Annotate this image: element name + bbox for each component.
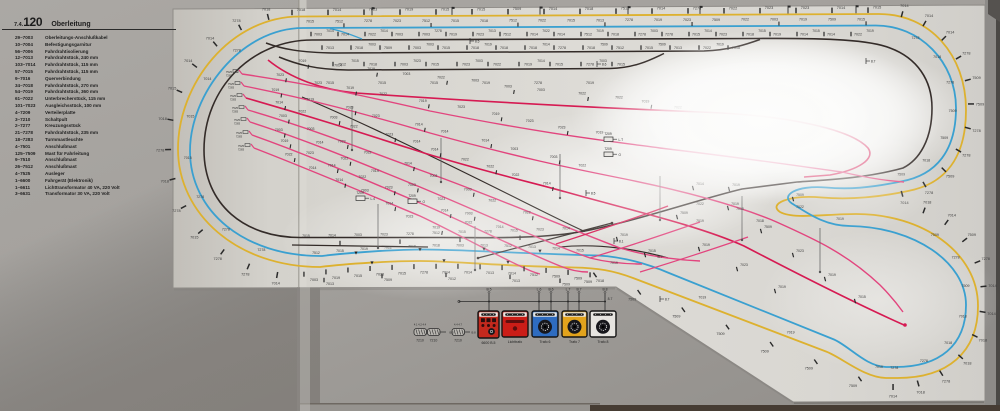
svg-text:L.7: L.7 (566, 288, 571, 292)
svg-text:7509: 7509 (849, 384, 857, 388)
svg-text:7014: 7014 (827, 33, 835, 37)
svg-text:7018: 7018 (963, 361, 971, 365)
svg-text:7022: 7022 (542, 29, 550, 33)
svg-text:7014: 7014 (900, 4, 908, 8)
svg-text:7003: 7003 (510, 147, 518, 151)
svg-text:7015: 7015 (351, 59, 359, 63)
svg-text:7003: 7003 (475, 59, 483, 63)
svg-text:7210: 7210 (454, 339, 462, 343)
svg-text:7022: 7022 (350, 125, 358, 129)
svg-text:7018: 7018 (944, 341, 952, 345)
svg-text:7278: 7278 (172, 209, 180, 213)
svg-text:7023: 7023 (740, 263, 748, 267)
svg-text:7509: 7509 (968, 233, 976, 237)
svg-text:7018: 7018 (933, 55, 941, 59)
svg-text:7022: 7022 (437, 75, 445, 79)
svg-text:7022: 7022 (368, 33, 376, 37)
svg-text:7278: 7278 (364, 19, 372, 23)
svg-text:7003: 7003 (403, 72, 411, 76)
svg-text:7015: 7015 (567, 18, 575, 22)
svg-text:7019: 7019 (299, 59, 307, 63)
svg-text:7014: 7014 (800, 33, 808, 37)
svg-text:7014: 7014 (413, 140, 421, 144)
svg-text:8.5: 8.5 (591, 192, 596, 196)
svg-text:7003: 7003 (307, 127, 315, 131)
svg-text:7209: 7209 (356, 191, 364, 195)
svg-text:7278: 7278 (233, 48, 241, 52)
svg-text:7509: 7509 (949, 109, 957, 113)
svg-text:7509: 7509 (584, 280, 592, 284)
svg-text:7019: 7019 (787, 330, 795, 334)
svg-text:7003: 7003 (770, 18, 778, 22)
svg-text:Lichttrafo: Lichttrafo (508, 340, 522, 344)
svg-text:7509: 7509 (384, 46, 392, 50)
svg-text:7015: 7015 (430, 81, 438, 85)
svg-text:7278: 7278 (890, 366, 898, 370)
svg-text:7018: 7018 (262, 8, 270, 12)
svg-text:7014: 7014 (333, 8, 341, 12)
svg-text:7018: 7018 (480, 19, 488, 23)
svg-text:7003: 7003 (504, 85, 512, 89)
svg-text:7023: 7023 (476, 33, 484, 37)
svg-text:7013: 7013 (326, 282, 334, 286)
svg-text:7512: 7512 (312, 251, 320, 255)
svg-text:7014: 7014 (948, 214, 956, 218)
svg-text:7283: 7283 (232, 110, 239, 114)
svg-text:7283: 7283 (230, 98, 237, 102)
svg-text:7019: 7019 (367, 67, 375, 71)
svg-text:7278: 7278 (638, 33, 646, 37)
svg-text:7003: 7003 (430, 174, 438, 178)
svg-text:7512: 7512 (584, 33, 592, 37)
svg-text:7278: 7278 (534, 81, 542, 85)
svg-text:7014: 7014 (530, 33, 538, 37)
svg-text:7014: 7014 (371, 169, 379, 173)
svg-text:7023: 7023 (346, 106, 354, 110)
svg-text:7019: 7019 (492, 112, 500, 116)
svg-text:7015: 7015 (306, 20, 314, 24)
svg-text:7015: 7015 (477, 7, 485, 11)
svg-text:7278: 7278 (962, 52, 970, 56)
svg-text:7018: 7018 (297, 8, 305, 12)
svg-text:7022: 7022 (379, 92, 387, 96)
svg-text:7015: 7015 (645, 46, 653, 50)
svg-text:8.7: 8.7 (665, 298, 670, 302)
svg-text:7278: 7278 (665, 33, 673, 37)
svg-text:4.4 4.7: 4.4 4.7 (454, 323, 462, 327)
svg-text:7278: 7278 (257, 248, 265, 252)
svg-text:7014: 7014 (275, 101, 283, 105)
svg-text:7014: 7014 (557, 33, 565, 37)
svg-text:7003: 7003 (413, 46, 421, 50)
svg-text:7512: 7512 (335, 19, 343, 23)
svg-text:7023: 7023 (306, 151, 314, 155)
svg-text:7015: 7015 (184, 156, 192, 160)
svg-text:7003: 7003 (422, 33, 430, 37)
svg-text:8.7: 8.7 (871, 60, 876, 64)
svg-text:7283: 7283 (236, 135, 243, 139)
svg-text:7209: 7209 (604, 132, 612, 136)
svg-text:7003: 7003 (650, 29, 658, 33)
svg-text:Trafo 7: Trafo 7 (569, 340, 580, 344)
svg-text:7022: 7022 (854, 33, 862, 37)
svg-text:L.4: L.4 (371, 197, 376, 201)
svg-text:7023: 7023 (462, 63, 470, 67)
svg-text:7278: 7278 (942, 379, 950, 383)
svg-text:7014: 7014 (380, 29, 388, 33)
svg-text:7014: 7014 (335, 178, 343, 182)
svg-text:7003: 7003 (395, 33, 403, 37)
svg-text:8.5: 8.5 (475, 40, 480, 44)
svg-text:7022: 7022 (512, 173, 520, 177)
svg-text:7509: 7509 (712, 18, 720, 22)
svg-text:7512: 7512 (503, 33, 511, 37)
svg-text:7509: 7509 (672, 315, 680, 319)
svg-text:7019: 7019 (484, 43, 492, 47)
svg-text:7022: 7022 (341, 156, 349, 160)
svg-text:7509: 7509 (828, 17, 836, 21)
svg-text:7022: 7022 (729, 6, 737, 10)
svg-text:7509: 7509 (976, 103, 984, 107)
svg-text:7019: 7019 (271, 88, 279, 92)
svg-text:7018: 7018 (585, 7, 593, 11)
svg-text:7018: 7018 (979, 338, 987, 342)
svg-text:7019: 7019 (332, 276, 340, 280)
svg-text:7018: 7018 (500, 46, 508, 50)
svg-text:7023: 7023 (276, 73, 284, 77)
svg-text:7509: 7509 (940, 136, 948, 140)
svg-text:7509: 7509 (562, 283, 570, 287)
svg-text:7209: 7209 (408, 194, 416, 198)
svg-text:7023: 7023 (372, 114, 380, 118)
svg-text:7019: 7019 (524, 63, 532, 67)
svg-text:Trafo 6: Trafo 6 (540, 340, 551, 344)
svg-text:7278: 7278 (912, 36, 920, 40)
svg-text:7018: 7018 (529, 46, 537, 50)
svg-text:7023: 7023 (796, 249, 804, 253)
svg-text:7003: 7003 (537, 88, 545, 92)
svg-text:7019: 7019 (778, 285, 786, 289)
svg-text:B.7: B.7 (576, 288, 581, 292)
svg-text:8.6: 8.6 (602, 63, 607, 67)
svg-text:7015: 7015 (336, 249, 344, 253)
svg-text:7019: 7019 (419, 99, 427, 103)
svg-text:7014: 7014 (925, 14, 933, 18)
svg-text:7278: 7278 (213, 257, 221, 261)
svg-text:7013: 7013 (488, 29, 496, 33)
svg-text:7015: 7015 (302, 234, 310, 238)
svg-text:7023: 7023 (393, 19, 401, 23)
svg-text:B.5: B.5 (486, 288, 491, 292)
svg-text:7015: 7015 (190, 235, 198, 239)
svg-text:7003: 7003 (400, 63, 408, 67)
svg-text:7019: 7019 (306, 98, 314, 102)
svg-text:7019: 7019 (281, 139, 289, 143)
svg-text:7019: 7019 (866, 29, 874, 33)
svg-text:7015: 7015 (431, 63, 439, 67)
svg-text:7512: 7512 (422, 19, 430, 23)
svg-text:Trafo 8: Trafo 8 (598, 340, 609, 344)
svg-text:7014: 7014 (328, 234, 336, 238)
svg-text:7022: 7022 (741, 18, 749, 22)
svg-text:7014: 7014 (657, 7, 665, 11)
svg-text:7013: 7013 (596, 18, 604, 22)
svg-text:7014: 7014 (889, 395, 897, 399)
svg-text:7014: 7014 (341, 33, 349, 37)
svg-text:7018: 7018 (959, 314, 967, 318)
svg-text:7014: 7014 (334, 63, 342, 67)
svg-text:7023: 7023 (558, 125, 566, 129)
svg-text:7509: 7509 (946, 175, 954, 179)
svg-text:7019: 7019 (610, 261, 618, 265)
svg-text:7015: 7015 (451, 19, 459, 23)
svg-text:7014: 7014 (988, 284, 996, 288)
svg-text:7019: 7019 (449, 33, 457, 37)
svg-text:7509: 7509 (962, 284, 970, 288)
svg-text:7022: 7022 (538, 19, 546, 23)
svg-text:B.8: B.8 (472, 331, 477, 335)
svg-text:7014: 7014 (704, 29, 712, 33)
svg-text:7018: 7018 (596, 279, 604, 283)
svg-text:7023: 7023 (526, 119, 534, 123)
svg-text:7015: 7015 (442, 46, 450, 50)
svg-text:7014: 7014 (316, 141, 324, 145)
svg-text:7283: 7283 (238, 148, 245, 152)
svg-text:7003: 7003 (314, 33, 322, 37)
svg-text:7509: 7509 (384, 278, 392, 282)
svg-text:7278: 7278 (625, 18, 633, 22)
svg-text:7015: 7015 (354, 274, 362, 278)
svg-text:7023: 7023 (413, 59, 421, 63)
svg-text:7509: 7509 (805, 367, 813, 371)
svg-text:7019: 7019 (346, 86, 354, 90)
svg-text:8.1: 8.1 (619, 240, 624, 244)
svg-text:7023: 7023 (338, 139, 346, 143)
svg-text:7015: 7015 (857, 17, 865, 21)
svg-text:7019: 7019 (586, 81, 594, 85)
svg-text:7014: 7014 (537, 59, 545, 63)
svg-text:7015: 7015 (186, 115, 194, 119)
svg-text:7015: 7015 (326, 81, 334, 85)
svg-text:7278: 7278 (962, 154, 970, 158)
svg-text:7014: 7014 (271, 281, 279, 285)
svg-text:7509: 7509 (972, 76, 980, 80)
svg-text:7003: 7003 (426, 43, 434, 47)
svg-text:7022: 7022 (298, 109, 306, 113)
svg-text:7022: 7022 (493, 63, 501, 67)
svg-text:7278: 7278 (434, 29, 442, 33)
svg-text:7014: 7014 (946, 30, 954, 34)
svg-text:7014: 7014 (309, 166, 317, 170)
svg-text:7509: 7509 (628, 297, 636, 301)
svg-text:B.8: B.8 (602, 288, 607, 292)
svg-text:7509: 7509 (931, 233, 939, 237)
svg-text:7003: 7003 (330, 116, 338, 120)
svg-text:7509: 7509 (600, 43, 608, 47)
svg-text:7014: 7014 (404, 162, 412, 166)
svg-text:7278: 7278 (972, 129, 980, 133)
svg-text:7022: 7022 (364, 151, 372, 155)
svg-text:7278: 7278 (232, 19, 240, 23)
svg-text:7023: 7023 (765, 6, 773, 10)
svg-text:7003: 7003 (275, 128, 283, 132)
svg-text:7512: 7512 (509, 19, 517, 23)
svg-text:7023: 7023 (457, 105, 465, 109)
svg-text:7013: 7013 (326, 46, 334, 50)
svg-text:7278: 7278 (946, 80, 954, 84)
svg-text:7210: 7210 (416, 339, 424, 343)
svg-text:7283: 7283 (228, 86, 235, 90)
svg-text:7018: 7018 (471, 46, 479, 50)
svg-text:7019: 7019 (799, 18, 807, 22)
svg-text:8.7: 8.7 (608, 297, 613, 301)
svg-text:7019: 7019 (698, 296, 706, 300)
svg-text:7014: 7014 (326, 29, 334, 33)
svg-text:7022: 7022 (285, 153, 293, 157)
svg-text:7023: 7023 (385, 186, 393, 190)
svg-text:7015: 7015 (758, 29, 766, 33)
svg-text:7019: 7019 (828, 273, 836, 277)
svg-text:7023: 7023 (314, 81, 322, 85)
svg-text:7014: 7014 (431, 148, 439, 152)
svg-text:7014: 7014 (987, 312, 995, 316)
svg-text:7019: 7019 (405, 8, 413, 12)
svg-text:6600 B.5: 6600 B.5 (481, 341, 495, 345)
svg-text:7018: 7018 (611, 33, 619, 37)
svg-text:7018: 7018 (355, 46, 363, 50)
svg-text:7019: 7019 (654, 18, 662, 22)
svg-text:7018: 7018 (587, 46, 595, 50)
svg-text:7014: 7014 (203, 77, 211, 81)
svg-text:7023: 7023 (801, 6, 809, 10)
svg-text:7015: 7015 (858, 295, 866, 299)
svg-text:7014: 7014 (415, 122, 423, 126)
svg-text:7014: 7014 (184, 59, 192, 63)
svg-text:7023: 7023 (719, 33, 727, 37)
svg-text:7019: 7019 (875, 365, 883, 369)
svg-text:7003: 7003 (550, 155, 558, 159)
svg-text:7019: 7019 (482, 81, 490, 85)
svg-text:7509: 7509 (764, 225, 772, 229)
svg-text:7209: 7209 (604, 147, 612, 151)
svg-text:7014: 7014 (206, 36, 214, 40)
svg-text:7278: 7278 (952, 255, 960, 259)
svg-text:L.T: L.T (619, 138, 624, 142)
svg-text:7015: 7015 (378, 81, 386, 85)
svg-text:7278: 7278 (241, 272, 249, 276)
svg-text:7022: 7022 (461, 157, 469, 161)
svg-text:7003: 7003 (368, 43, 376, 47)
svg-text:7015: 7015 (873, 6, 881, 10)
svg-text:7015: 7015 (441, 8, 449, 12)
svg-text:7278: 7278 (586, 63, 594, 67)
svg-text:7018: 7018 (369, 63, 377, 67)
svg-text:7278: 7278 (196, 195, 204, 199)
svg-text:B.6: B.6 (548, 288, 553, 292)
svg-text:7512: 7512 (616, 46, 624, 50)
svg-text:7022: 7022 (358, 175, 366, 179)
svg-text:L.6: L.6 (537, 288, 542, 292)
svg-text:7283: 7283 (234, 122, 241, 126)
svg-text:7509: 7509 (574, 276, 582, 280)
svg-text:7003: 7003 (408, 183, 416, 187)
svg-text:B.5: B.5 (450, 331, 455, 335)
svg-text:7015: 7015 (692, 33, 700, 37)
svg-text:7014: 7014 (481, 139, 489, 143)
svg-text:7014: 7014 (549, 7, 557, 11)
svg-text:7015: 7015 (812, 29, 820, 33)
svg-text:7003: 7003 (310, 278, 318, 282)
svg-text:7022: 7022 (486, 165, 494, 169)
svg-text:7014: 7014 (837, 6, 845, 10)
svg-text:7278: 7278 (222, 227, 230, 231)
svg-text:7014: 7014 (328, 164, 336, 168)
svg-text:7015: 7015 (617, 63, 625, 67)
svg-text:7023: 7023 (683, 18, 691, 22)
svg-text:7509: 7509 (716, 332, 724, 336)
svg-text:7509: 7509 (658, 43, 666, 47)
svg-text:7018: 7018 (916, 391, 924, 395)
svg-text:7014: 7014 (542, 43, 550, 47)
svg-text:7003: 7003 (279, 114, 287, 118)
svg-text:7509: 7509 (761, 349, 769, 353)
svg-text:7015: 7015 (555, 63, 563, 67)
svg-text:7014: 7014 (441, 130, 449, 134)
svg-text:7278: 7278 (981, 257, 989, 261)
svg-text:7283: 7283 (226, 74, 233, 78)
svg-text:7022: 7022 (578, 92, 586, 96)
svg-text:7023: 7023 (376, 273, 384, 277)
svg-text:7023: 7023 (385, 133, 393, 137)
svg-text:B.7: B.7 (657, 255, 662, 259)
svg-text:7019: 7019 (596, 29, 604, 33)
svg-text:7003: 7003 (471, 79, 479, 83)
svg-text:7509: 7509 (513, 7, 521, 11)
svg-text:4.1 4.2 4.4: 4.1 4.2 4.4 (414, 323, 427, 327)
svg-text:7210: 7210 (430, 339, 438, 343)
svg-text:7278: 7278 (920, 359, 928, 363)
svg-text:7278: 7278 (558, 46, 566, 50)
